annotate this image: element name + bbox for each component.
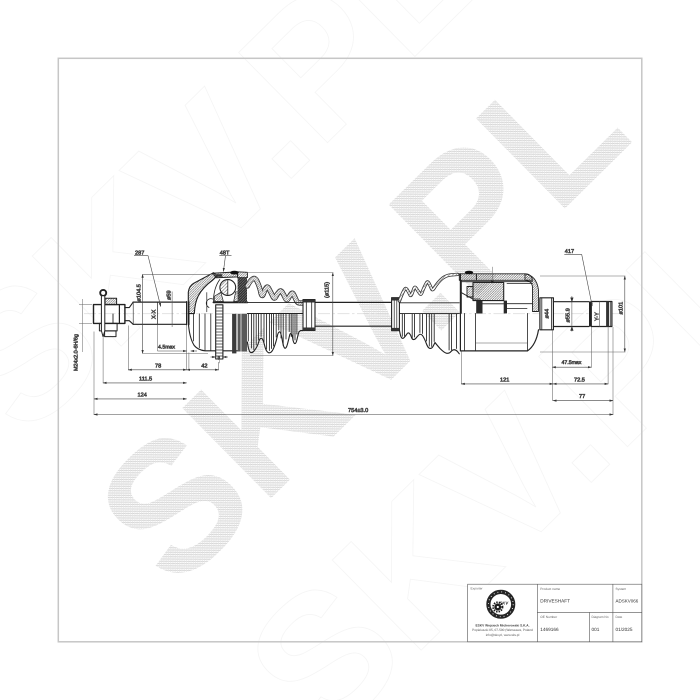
svg-text:Popieluszki 05, 07-500 (Warsza: Popieluszki 05, 07-500 (Warszawa, Poland (472, 628, 533, 632)
svg-text:72.5: 72.5 (574, 377, 585, 383)
svg-text:Date: Date (616, 615, 623, 619)
svg-text:121: 121 (500, 377, 509, 383)
svg-text:DRIVESHAFT: DRIVESHAFT (540, 599, 570, 604)
svg-text:info@skv.pl, www.skv.pl: info@skv.pl, www.skv.pl (486, 633, 520, 637)
svg-text:1469166: 1469166 (540, 627, 559, 632)
svg-text:754±3.0: 754±3.0 (348, 408, 368, 414)
svg-text:8: 8 (218, 356, 221, 361)
svg-text:001: 001 (592, 627, 600, 632)
svg-text:Y-Y: Y-Y (595, 312, 601, 321)
svg-text:111.5: 111.5 (139, 377, 152, 383)
svg-text:X-X: X-X (152, 309, 158, 319)
svg-text:Diagram No: Diagram No (592, 615, 609, 619)
svg-text:ø101: ø101 (619, 302, 625, 315)
svg-text:(ø115): (ø115) (324, 282, 331, 298)
svg-text:Exporter: Exporter (471, 587, 484, 591)
svg-text:01/2025: 01/2025 (616, 627, 633, 632)
svg-text:ø55.9: ø55.9 (566, 308, 572, 322)
svg-text:4.5max: 4.5max (158, 345, 175, 351)
svg-text:42: 42 (201, 363, 207, 369)
svg-text:ø104.5: ø104.5 (136, 284, 142, 301)
svg-text:ADSKV066: ADSKV066 (616, 599, 639, 604)
svg-text:System: System (616, 587, 627, 591)
svg-text:M24x2.0-6H/6g: M24x2.0-6H/6g (74, 334, 80, 371)
svg-text:ø59: ø59 (167, 290, 173, 300)
svg-text:OE Number: OE Number (540, 615, 558, 619)
svg-text:ø44: ø44 (544, 309, 550, 319)
svg-text:SKV: SKV (500, 601, 510, 606)
svg-text:Product name: Product name (540, 587, 560, 591)
svg-text:124: 124 (138, 392, 147, 398)
svg-text:47.5max: 47.5max (562, 360, 582, 366)
svg-text:ESKV Wojciech Michorowski S.K.: ESKV Wojciech Michorowski S.K.A. (476, 623, 530, 627)
svg-text:78: 78 (155, 363, 161, 369)
svg-text:77: 77 (579, 394, 585, 400)
